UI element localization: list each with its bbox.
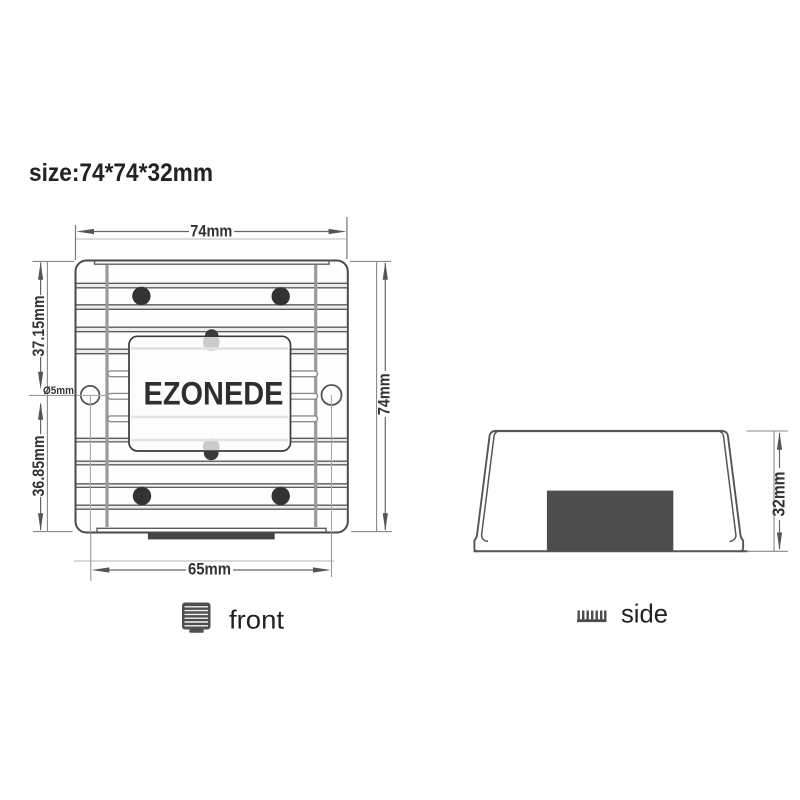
svg-text:32mm: 32mm <box>769 472 789 517</box>
svg-text:EZONEDE: EZONEDE <box>144 376 284 412</box>
svg-text:36.85mm: 36.85mm <box>30 436 48 497</box>
svg-text:37.15mm: 37.15mm <box>30 296 48 357</box>
svg-text:Ø5mm: Ø5mm <box>43 385 74 397</box>
svg-text:74mm: 74mm <box>376 373 394 415</box>
svg-text:74mm: 74mm <box>190 222 232 241</box>
svg-text:side: side <box>621 599 668 629</box>
svg-text:size:74*74*32mm: size:74*74*32mm <box>29 159 213 187</box>
svg-text:65mm: 65mm <box>188 560 231 579</box>
svg-text:front: front <box>229 605 285 635</box>
